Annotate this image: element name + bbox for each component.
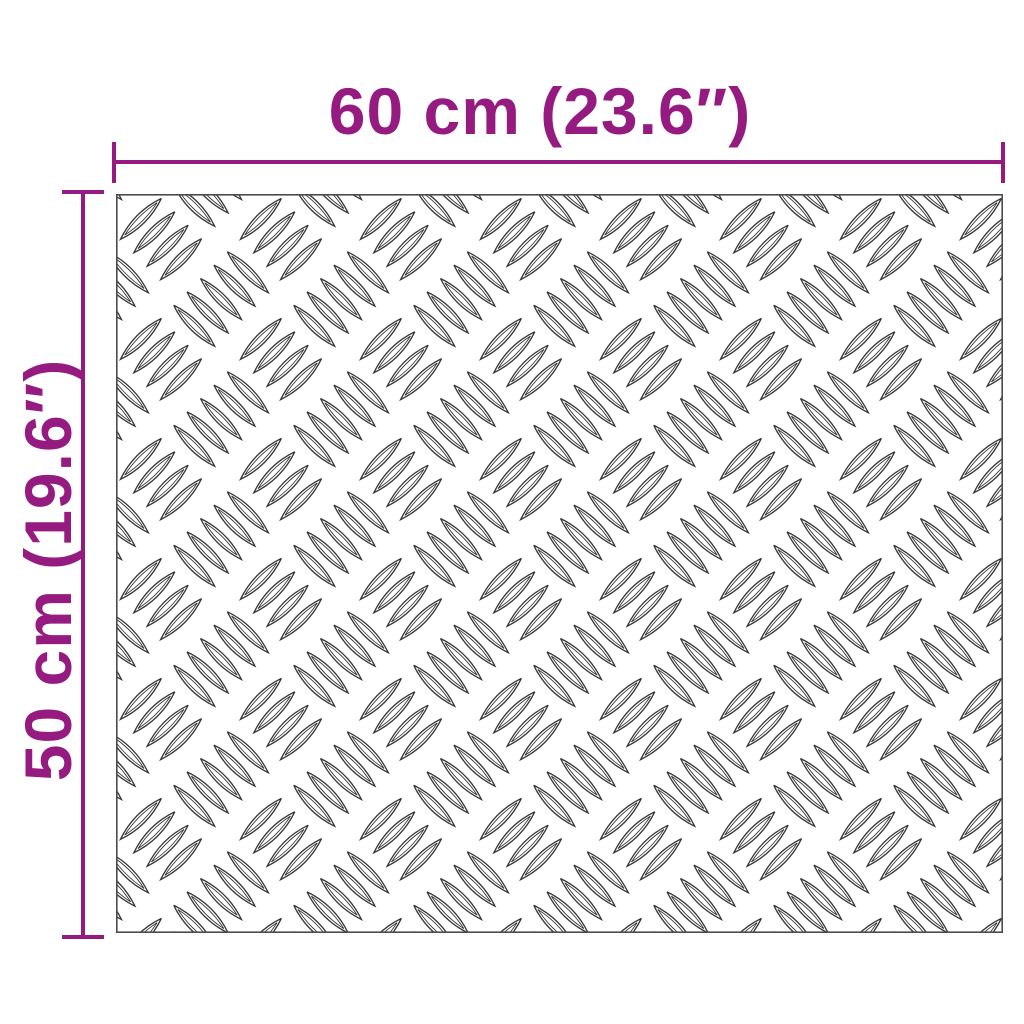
plate-pattern [116,194,1003,933]
width-dimension-line [112,160,1005,164]
height-dimension-tick-bottom [62,935,104,939]
height-dimension-line [81,190,85,939]
checker-plate-image [116,194,1003,933]
height-dimension-label: 50 cm (19.6″) [15,359,81,782]
product-dimension-diagram: 60 cm (23.6″) 50 cm (19.6″) [0,0,1024,1024]
width-dimension-tick-left [112,142,116,183]
width-dimension-tick-right [1001,142,1005,183]
height-dimension-tick-top [62,190,104,194]
width-dimension-label: 60 cm (23.6″) [329,78,752,144]
